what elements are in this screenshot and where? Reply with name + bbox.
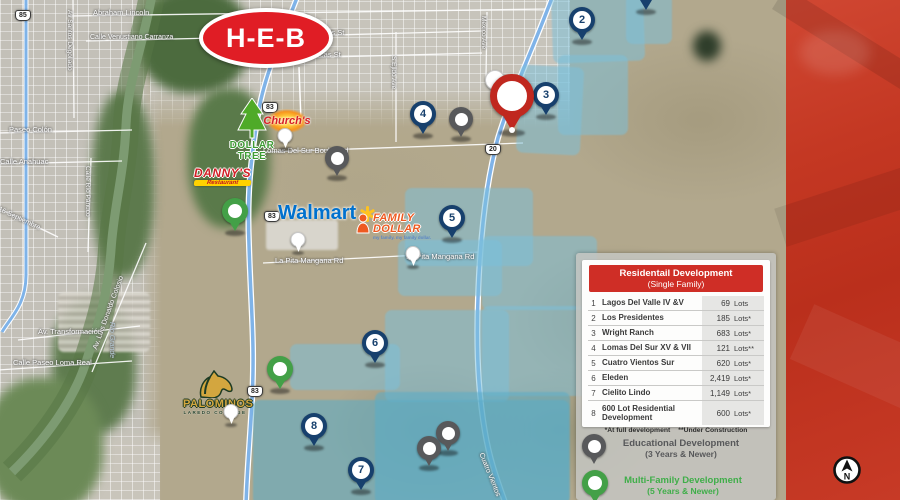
multifamily-legend-pin [582, 470, 608, 500]
dannys-text: DANNY'S [194, 166, 251, 180]
development-map: Abraham Lincoln Calle Venustiano Carranz… [0, 0, 900, 500]
walmart-text: Walmart [278, 202, 356, 225]
family-dollar-location-pin [406, 246, 421, 266]
residential-marker-3: 3 [533, 82, 559, 115]
palominos-location-pin [224, 404, 239, 424]
table-row: 3Wright Ranch683Lots* [588, 326, 764, 341]
sidebar-texture [774, 153, 900, 247]
sidebar-texture [800, 30, 870, 75]
featured-site-pin [490, 74, 534, 131]
street-label: Calle Paseo Loma Real [13, 358, 92, 367]
educational-legend-pin [582, 434, 606, 464]
legend-educational: Educational Development (3 Years & Newer… [582, 434, 756, 464]
footnote-under-construction: **Under Construction [678, 427, 747, 434]
residential-marker-4: 4 [410, 101, 436, 134]
palominos-horse-icon [196, 370, 234, 398]
dannys-logo: DANNY'S Restaurant [194, 166, 251, 186]
multifamily-pin [267, 356, 293, 389]
table-row: 4Lomas Del Sur XV & VII121Lots** [588, 341, 764, 356]
heb-logo: H-E-B [199, 8, 333, 68]
street-label: Calle Anahuac [0, 157, 48, 166]
sidebar-texture [790, 304, 900, 416]
table-row: 6Eleden2,419Lots* [588, 371, 764, 386]
legend-panel: Residentail Development (Single Family) … [576, 253, 776, 500]
table-header: Residentail Development (Single Family) [589, 265, 763, 292]
north-label: N [844, 472, 851, 482]
street-label: Paseo Colón [9, 125, 52, 134]
residential-marker-8: 8 [301, 413, 327, 446]
family-dollar-tagline: my family. my family dollar. [373, 235, 431, 240]
street-label: Abraham Lincoln [93, 8, 149, 17]
table-row: 8600 Lot Residential Development600Lots* [588, 401, 764, 425]
table-row: 5Cuatro Vientos Sur620Lots* [588, 356, 764, 371]
family-dollar-logo: FAMILY DOLLAR my family. my family dolla… [355, 213, 431, 240]
legend-educational-line2: (3 Years & Newer) [606, 450, 756, 460]
street-label: Calle Venustiano Carranza [90, 34, 173, 41]
river-label: Río Grande [108, 322, 115, 358]
table-row: 7Cielito Lindo1,149Lots* [588, 386, 764, 401]
family-dollar-icon [355, 213, 371, 235]
walmart-location-pin [291, 232, 306, 252]
table-row: 1Lagos Del Valle IV &V69Lots [588, 296, 764, 311]
multifamily-pin [222, 198, 248, 231]
residential-table-card: Residentail Development (Single Family) … [582, 260, 770, 427]
street-label: Calle Río Pánuco [84, 166, 91, 217]
table-footnotes: *At full development **Under Constructio… [576, 427, 776, 434]
family-dollar-line2: DOLLAR [373, 224, 431, 235]
north-arrow-icon: N [832, 455, 862, 490]
street-label: Av. Transformación [38, 327, 102, 336]
street-label: La Pita Mangana Rd [275, 256, 343, 265]
residential-marker-1-partial [640, 0, 652, 10]
churchs-location-pin [278, 128, 293, 148]
educational-pin [325, 146, 349, 176]
heb-logo-text: H-E-B [226, 23, 306, 54]
dev-zone-south [375, 392, 570, 500]
dannys-sub-text: Restaurant [194, 180, 252, 186]
legend-multifamily: Multi-Family Development (5 Years & Newe… [582, 470, 758, 500]
residential-marker-5: 5 [439, 205, 465, 238]
street-label: S Ejido Ave [390, 56, 397, 89]
residential-marker-7: 7 [348, 457, 374, 490]
educational-pin [417, 436, 441, 466]
educational-pin [449, 107, 473, 137]
churchs-text: Church's [263, 115, 310, 127]
residential-marker-6: 6 [362, 330, 388, 363]
table-title: Residentail Development [591, 268, 761, 279]
legend-educational-line1: Educational Development [606, 439, 756, 450]
residential-marker-2: 2 [569, 7, 595, 40]
table-subtitle: (Single Family) [591, 279, 761, 289]
street-label: Mexico Ave [480, 16, 487, 49]
highway-83-shield: 83 [247, 386, 263, 397]
highway-85-shield: 85 [15, 10, 31, 21]
red-sidebar [786, 0, 900, 500]
street-label: Av Santos Degollado [66, 10, 73, 71]
legend-multifamily-line2: (5 Years & Newer) [608, 487, 758, 497]
footnote-full-development: *At full development [605, 427, 671, 434]
highway-20-shield: 20 [485, 144, 501, 155]
table-row: 2Los Presidentes185Lots* [588, 311, 764, 326]
dollar-tree-text: DOLLAR TREE [222, 140, 282, 162]
